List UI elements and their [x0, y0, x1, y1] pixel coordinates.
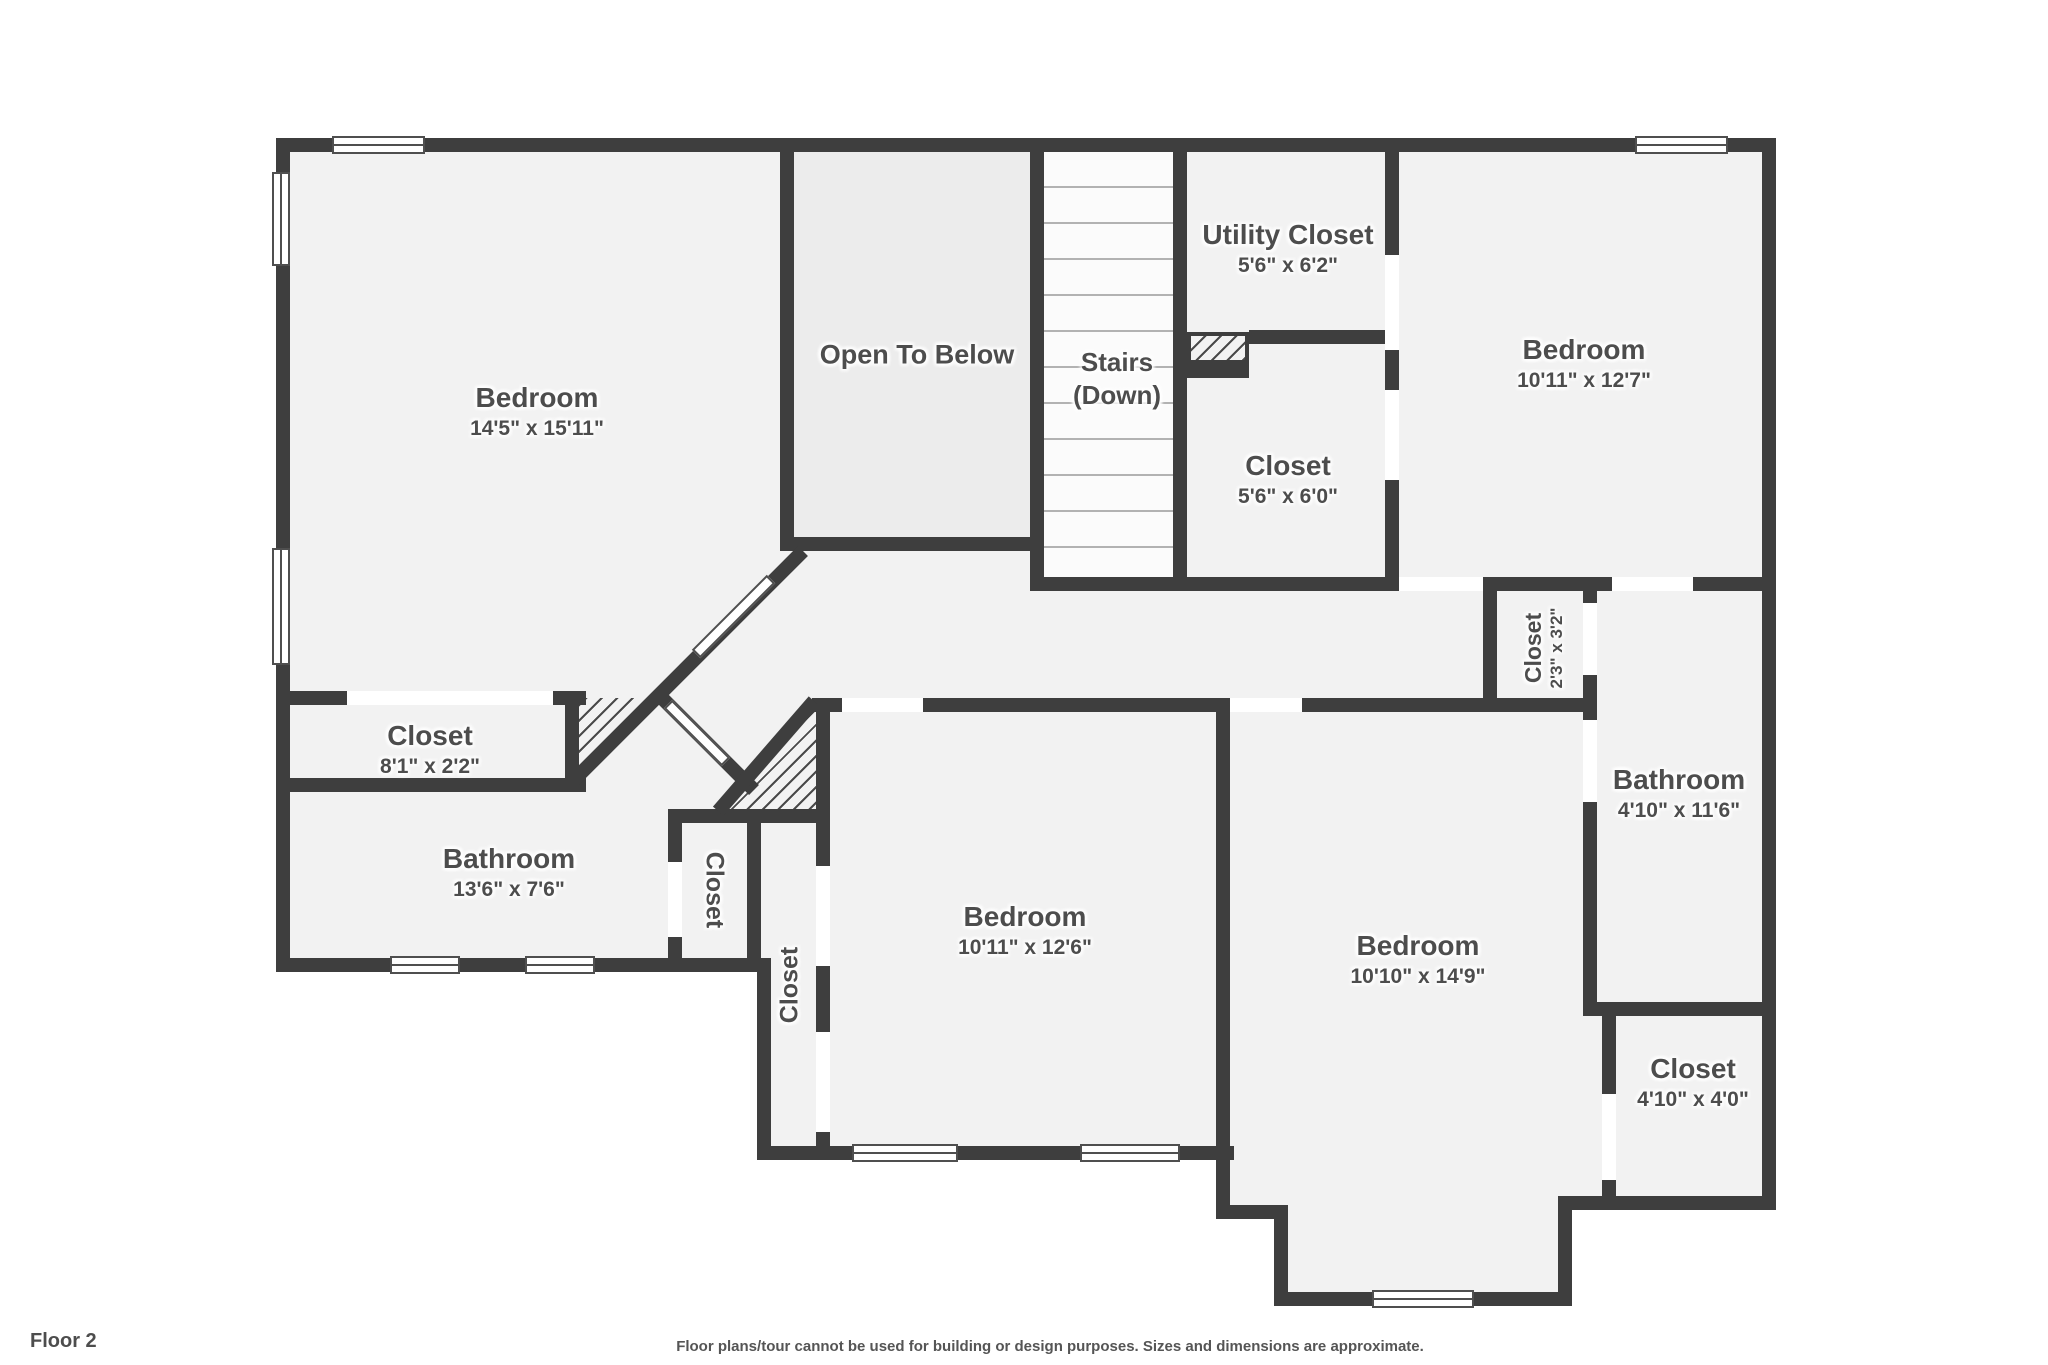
door-opening-bedroom-tr: [1399, 577, 1483, 591]
window-bedroom-bm-1: [852, 1144, 958, 1162]
window-bathroom136-2: [525, 956, 595, 974]
door-opening-closet410: [1602, 1094, 1616, 1180]
wall-under-hatch: [1187, 364, 1249, 378]
room-name: Closet: [1637, 1052, 1749, 1085]
wall-stair-bottom: [1030, 577, 1187, 591]
wall-bottom-left: [276, 958, 771, 972]
room-name: Bedroom: [958, 900, 1092, 933]
wall-closetv1-v2: [747, 809, 761, 958]
room-label-closet23: Closet 2'3" x 3'2": [1520, 608, 1568, 689]
floor-label: Floor 2: [30, 1330, 97, 1353]
room-label-stairs: Stairs (Down): [1073, 346, 1161, 412]
hatch-area-utility: [1187, 332, 1249, 364]
door-opening-bedroom-br: [1230, 698, 1302, 712]
room-name: Bedroom: [1517, 333, 1651, 366]
wall-hall-north-1: [1187, 577, 1399, 591]
room-size: 10'11" x 12'7": [1517, 366, 1651, 395]
room-name: Utility Closet: [1202, 218, 1373, 251]
door-opening-bedroom-bm: [842, 698, 923, 712]
room-size: 10'10" x 14'9": [1350, 962, 1485, 991]
wall-otb-bottom: [780, 537, 1043, 551]
room-label-bedroom-bm: Bedroom 10'11" x 12'6": [958, 900, 1092, 962]
room-size: 14'5" x 15'11": [470, 414, 604, 443]
door-opening-closet56: [1385, 390, 1399, 480]
wall-bm-right: [1216, 698, 1230, 1160]
floor-plan-canvas: Bedroom 14'5" x 15'11" Open To Below Sta…: [0, 0, 2048, 1365]
room-label-closet410: Closet 4'10" x 4'0": [1637, 1052, 1749, 1114]
room-name: Bedroom: [1350, 929, 1485, 962]
door-opening-closetv2-a: [816, 866, 830, 966]
wall-utility-right: [1385, 152, 1399, 591]
room-label-bathroom136: Bathroom 13'6" x 7'6": [443, 842, 575, 904]
door-opening-bedroomtr-bath: [1612, 577, 1693, 591]
room-size: 8'1" x 2'2": [380, 752, 480, 781]
door-opening-closetv1: [668, 862, 682, 937]
wall-tri2-bottom: [710, 809, 830, 823]
wall-bedroomtl-right: [780, 152, 794, 551]
room-fill-bay: [1288, 1205, 1558, 1292]
window-left-2: [272, 548, 290, 665]
room-label-closet-v1: Closet: [700, 852, 729, 928]
room-label-bedroom-tr: Bedroom 10'11" x 12'7": [1517, 333, 1651, 395]
room-label-open-to-below: Open To Below: [820, 340, 1015, 371]
room-size: 13'6" x 7'6": [443, 875, 575, 904]
room-label-closet81: Closet 8'1" x 2'2": [380, 719, 480, 781]
wall-stair-left: [1030, 152, 1044, 591]
wall-stair-right: [1173, 152, 1187, 591]
room-label-bedroom-br: Bedroom 10'10" x 14'9": [1350, 929, 1485, 991]
room-label-closet-v2: Closet: [776, 947, 805, 1023]
window-top-left: [332, 136, 425, 154]
wall-bathroom410-bottom: [1583, 1002, 1776, 1016]
door-opening-closet81: [347, 691, 553, 705]
room-size: (Down): [1073, 379, 1161, 412]
door-opening-closet23: [1583, 603, 1597, 675]
room-name: Bathroom: [1613, 763, 1745, 796]
wall-bay-left: [1274, 1205, 1288, 1306]
wall-hall-north-3: [1693, 577, 1776, 591]
room-size: 10'11" x 12'6": [958, 933, 1092, 962]
wall-utility-bottom: [1249, 330, 1399, 344]
wall-step-vert: [757, 958, 771, 1160]
room-name: Stairs: [1073, 346, 1161, 379]
room-size: 5'6" x 6'0": [1238, 482, 1338, 511]
wall-right: [1762, 138, 1776, 1210]
window-bay: [1372, 1290, 1474, 1308]
room-label-closet56: Closet 5'6" x 6'0": [1238, 449, 1338, 511]
room-name: Closet: [380, 719, 480, 752]
room-name: Bedroom: [470, 381, 604, 414]
window-top-right: [1635, 136, 1728, 154]
wall-top: [276, 138, 1776, 152]
room-label-bathroom410: Bathroom 4'10" x 11'6": [1613, 763, 1745, 825]
door-opening-utility: [1385, 255, 1399, 350]
door-opening-closetv2-b: [816, 1032, 830, 1132]
window-bedroom-bm-2: [1080, 1144, 1180, 1162]
wall-br-top: [1302, 698, 1597, 712]
disclaimer-text: Floor plans/tour cannot be used for buil…: [676, 1338, 1424, 1355]
room-size: 4'10" x 4'0": [1637, 1085, 1749, 1114]
room-label-utility: Utility Closet 5'6" x 6'2": [1202, 218, 1373, 280]
room-size: 5'6" x 6'2": [1202, 251, 1373, 280]
wall-closet23-left: [1483, 591, 1497, 712]
wall-bottom-right: [1558, 1196, 1776, 1210]
window-bathroom136-1: [390, 956, 460, 974]
room-name: Closet: [1238, 449, 1338, 482]
room-name: Bathroom: [443, 842, 575, 875]
window-left-1: [272, 172, 290, 266]
room-label-bedroom-tl: Bedroom 14'5" x 15'11": [470, 381, 604, 443]
wall-hall-south-2: [923, 698, 1216, 712]
room-name: Closet: [1520, 608, 1546, 689]
room-size: 2'3" x 3'2": [1546, 608, 1568, 689]
wall-bay-right: [1558, 1196, 1572, 1306]
door-opening-bathroom410: [1583, 720, 1597, 802]
room-size: 4'10" x 11'6": [1613, 796, 1745, 825]
wall-hall-north-2: [1483, 577, 1612, 591]
